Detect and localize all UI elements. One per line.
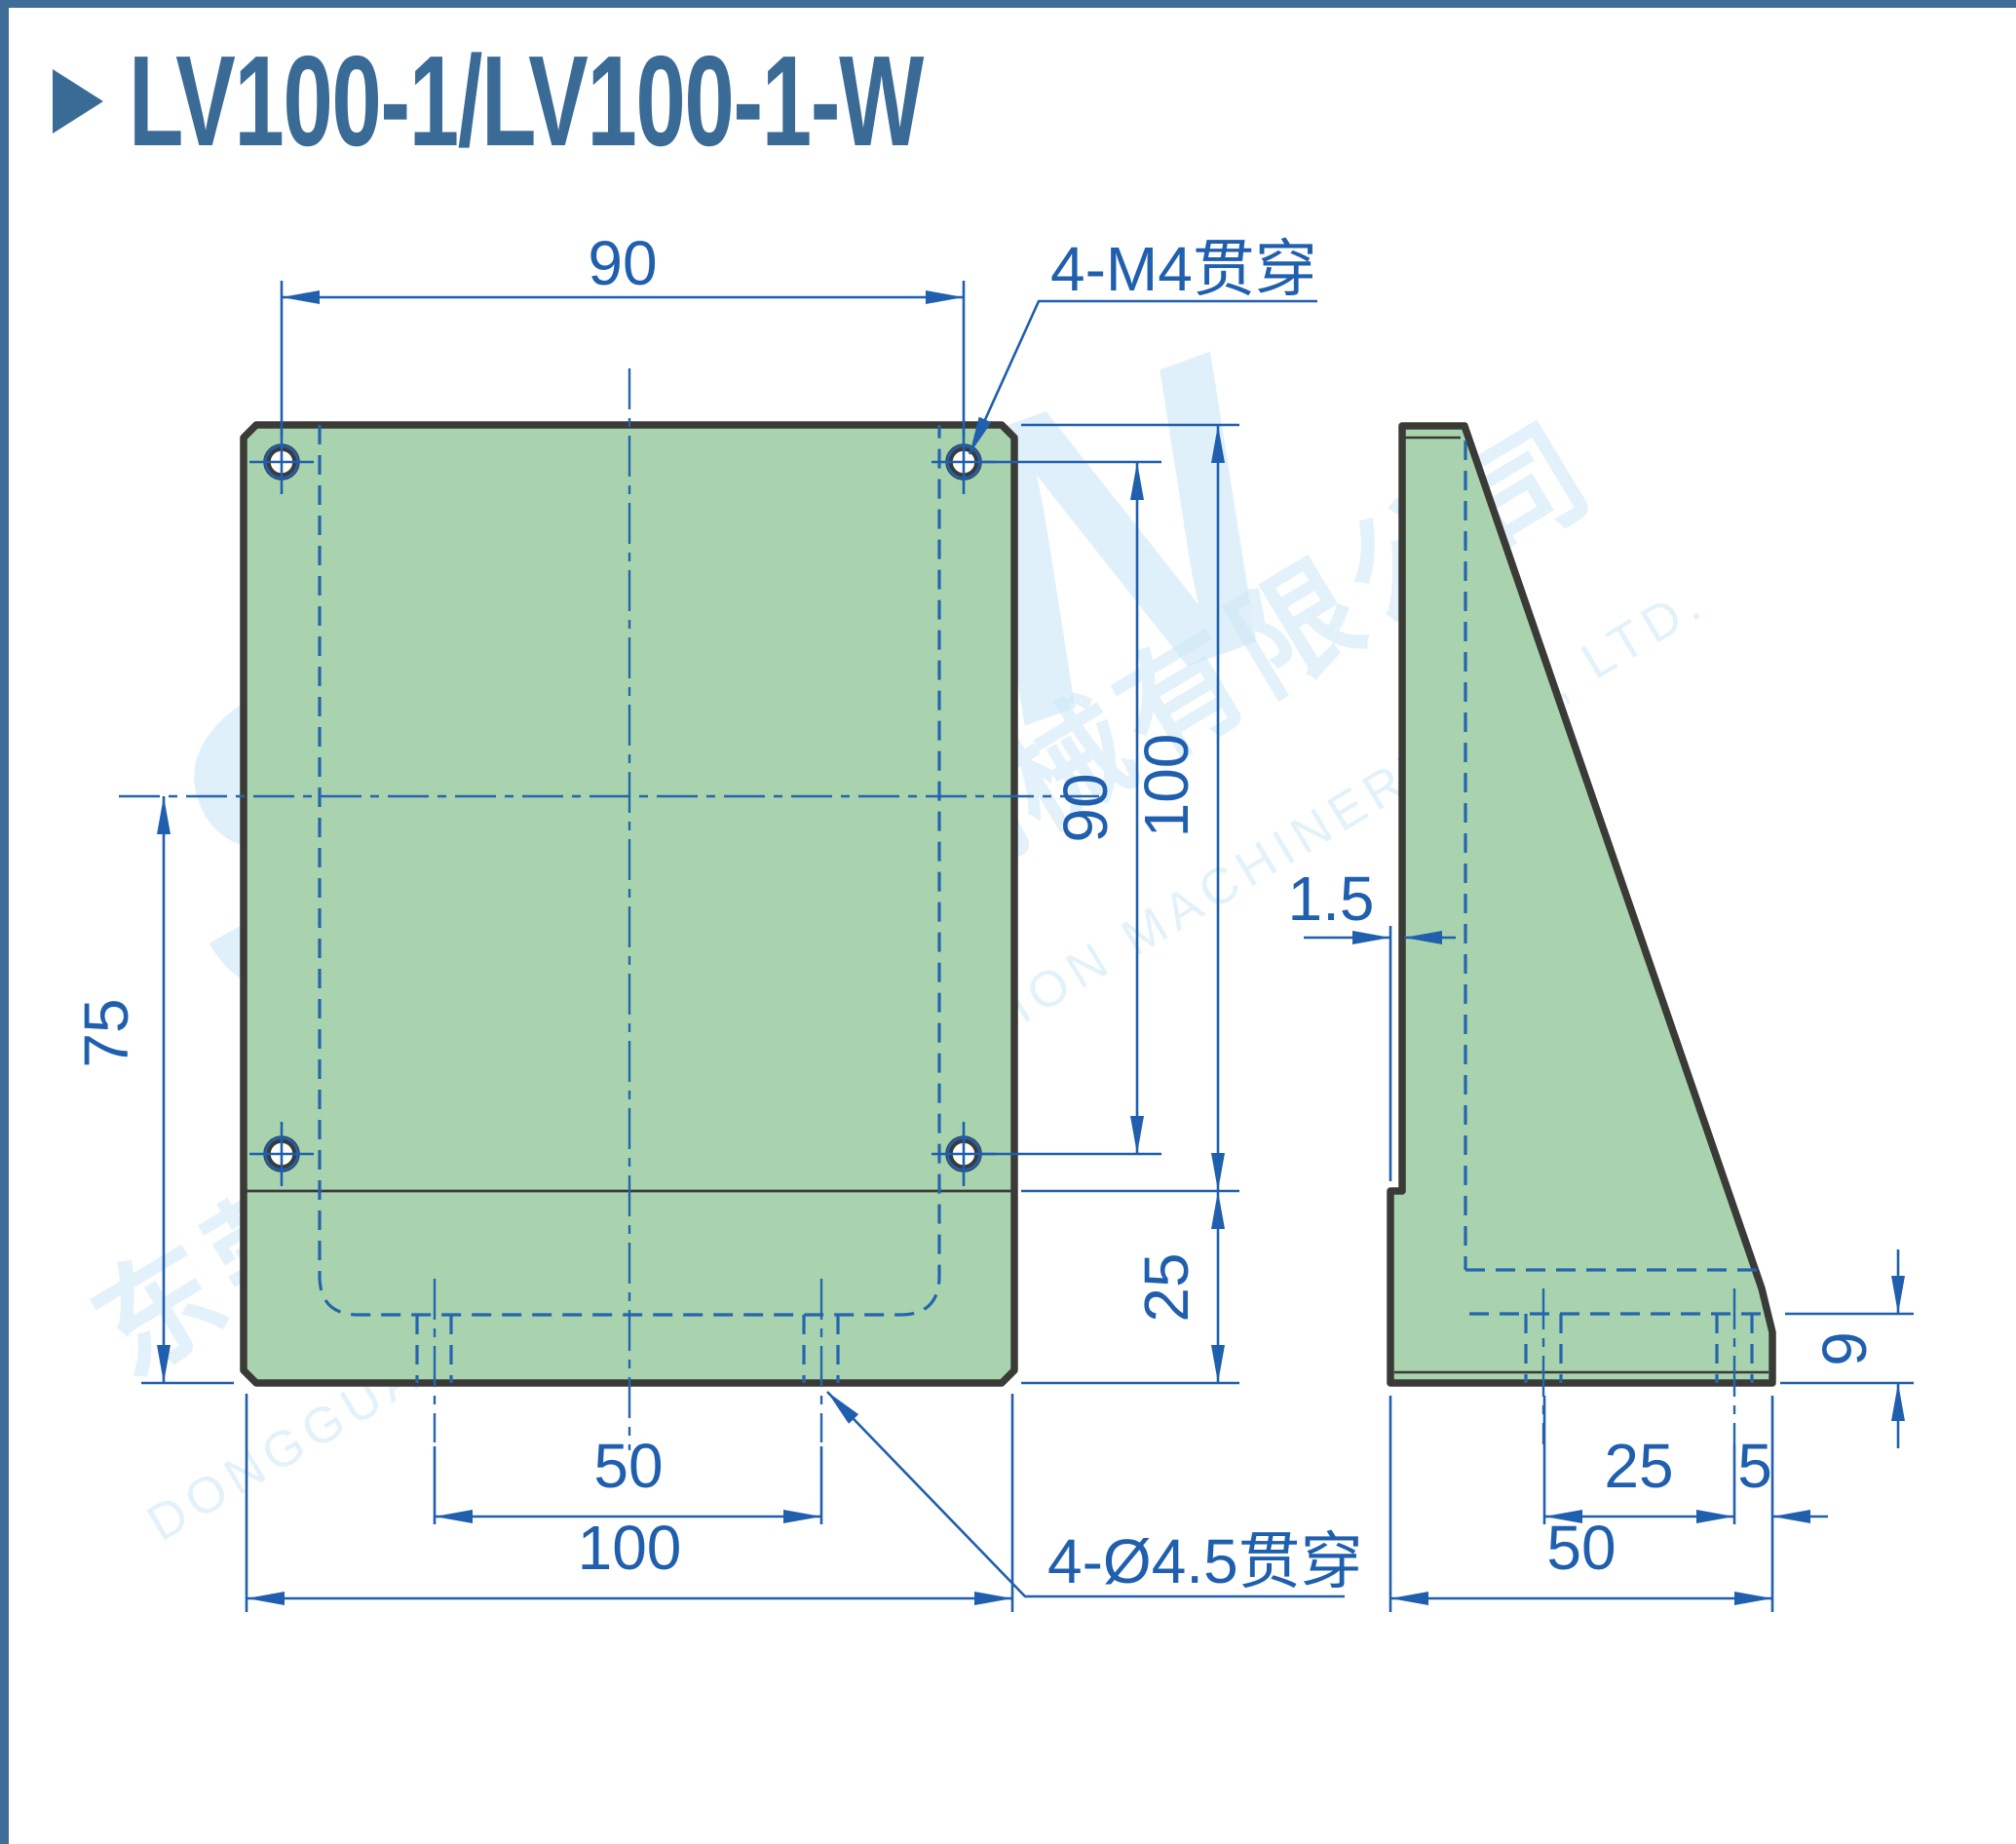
dim-text-side-50: 50 bbox=[1546, 1513, 1616, 1583]
dim-text-front-right-90: 90 bbox=[1050, 773, 1121, 842]
dim-front-slot-spacing: 50 bbox=[435, 1431, 821, 1524]
dim-front-base-height: 25 bbox=[1021, 1191, 1239, 1383]
callout-through-slots: 4-Ø4.5贯穿 bbox=[827, 1392, 1363, 1596]
dim-text-front-bottom-50: 50 bbox=[593, 1431, 663, 1501]
dim-text-side-1.5: 1.5 bbox=[1288, 864, 1375, 934]
dim-text-side-25: 25 bbox=[1604, 1431, 1673, 1501]
technical-drawing-canvas: SELN 东莞市盛菱精密机械有限公司 DONGGUAN SHENG LING P… bbox=[0, 0, 2016, 1844]
dim-text-side-5: 5 bbox=[1737, 1431, 1772, 1501]
dim-text-front-left-75: 75 bbox=[71, 998, 141, 1067]
callout-text-4-M4: 4-M4贯穿 bbox=[1050, 234, 1317, 304]
side-view-outline bbox=[1390, 426, 1772, 1383]
dim-text-front-right-25: 25 bbox=[1131, 1252, 1201, 1322]
dim-text-front-bottom-100: 100 bbox=[578, 1513, 682, 1583]
front-view-outline bbox=[244, 425, 1014, 1383]
dim-text-front-right-100: 100 bbox=[1131, 734, 1201, 838]
dim-side-depth: 50 bbox=[1390, 1396, 1772, 1612]
callout-text-4-d4.5: 4-Ø4.5贯穿 bbox=[1047, 1526, 1363, 1596]
dim-side-pocket-floor: 9 bbox=[1780, 1249, 1914, 1448]
dim-text-side-9: 9 bbox=[1809, 1331, 1880, 1366]
dim-text-front-top-90: 90 bbox=[588, 228, 657, 298]
